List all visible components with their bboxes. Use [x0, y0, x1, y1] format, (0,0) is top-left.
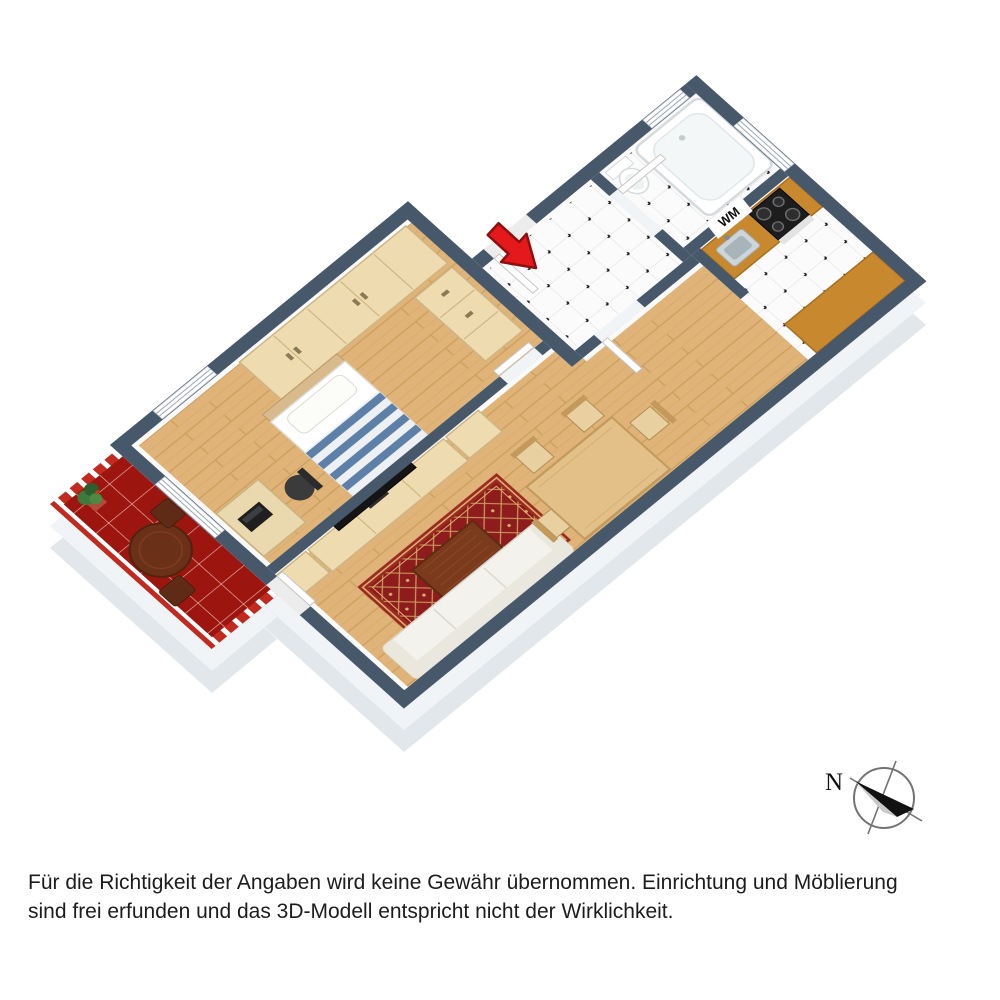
floor-plan-image: WM N [0, 0, 1000, 1000]
disclaimer-line-2: sind frei erfunden und das 3D-Modell ent… [28, 897, 978, 926]
disclaimer: Für die Richtigkeit der Angaben wird kei… [28, 868, 978, 926]
floor-plan-page: WM N Für die Richtigkeit der Angaben wir… [0, 0, 1000, 1000]
disclaimer-line-1: Für die Richtigkeit der Angaben wird kei… [28, 868, 978, 897]
compass-north-text: N [825, 769, 843, 796]
compass-rose: N [825, 761, 922, 834]
